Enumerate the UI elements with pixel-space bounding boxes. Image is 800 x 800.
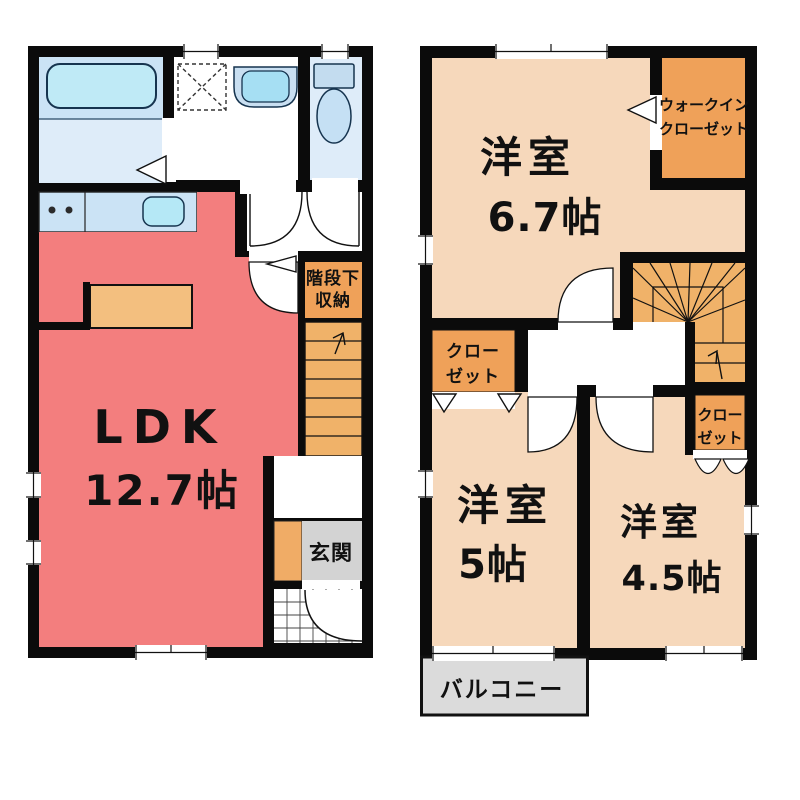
- label-room5-size: 5帖: [458, 542, 528, 588]
- label-room67-size: 6.7帖: [488, 195, 603, 241]
- window-top-toilet: [321, 44, 349, 59]
- wall-67-bottom-right: [613, 318, 633, 330]
- label-closet-left-2: ゼット: [446, 366, 500, 387]
- room5-door-gap: [528, 383, 577, 397]
- window-left-ldk-1: [26, 472, 41, 498]
- label-room45: 洋室: [620, 501, 702, 544]
- label-closet-right-2: ゼット: [697, 429, 742, 447]
- window-top-washroom: [183, 44, 219, 59]
- window-bottom-room5: [432, 646, 555, 661]
- window-left-room5: [418, 470, 433, 498]
- wall-hall-mid: [577, 385, 596, 397]
- wall-closet-right: [515, 318, 528, 397]
- closet-right-threshold: [693, 450, 747, 459]
- label-wic-2: クローゼット: [659, 120, 749, 138]
- floorplan-canvas: LDK 12.7帖 階段下 収納 玄関: [0, 0, 800, 800]
- floor2-plan: 洋室 6.7帖 ウォークイン クローゼット クロー ゼット クロー ゼット 洋室…: [418, 44, 759, 715]
- stove-knob-1: [49, 207, 56, 214]
- window-left-67: [418, 235, 433, 265]
- hall-1f: [247, 192, 362, 251]
- label-balcony: バルコニー: [440, 677, 565, 703]
- wall-67-bottom: [432, 318, 558, 330]
- window-bottom-room45: [665, 646, 743, 661]
- stairs-2f-flight: [695, 322, 745, 382]
- vanity-bowl: [242, 71, 289, 102]
- wall-between-rooms: [577, 397, 590, 648]
- label-understairs-2: 収納: [315, 290, 351, 311]
- window-right-room45: [744, 505, 759, 535]
- label-ldk-size: 12.7帖: [84, 466, 240, 515]
- entrance-door-gap: [302, 580, 360, 590]
- floorplan-svg: LDK 12.7帖 階段下 収納 玄関: [0, 0, 800, 800]
- stove-knob-2: [66, 207, 73, 214]
- hallway-upper: [633, 322, 685, 330]
- toilet-door-gap: [312, 178, 358, 194]
- bathtub: [47, 64, 156, 108]
- hallway-2f: [527, 330, 685, 385]
- wall-closet-right-left: [685, 395, 695, 455]
- washroom-door-gap: [240, 178, 296, 194]
- room45-door-gap: [596, 383, 653, 397]
- label-room67: 洋室: [480, 133, 576, 182]
- kitchen-island-counter: [90, 285, 192, 328]
- entry-step-block: [274, 521, 302, 581]
- window-left-ldk-2: [26, 540, 41, 565]
- label-wic-1: ウォークイン: [659, 96, 749, 114]
- label-understairs-1: 階段下: [306, 268, 360, 289]
- island-wall-stub-h: [39, 322, 90, 330]
- label-closet-left-1: クロー: [446, 342, 500, 362]
- label-entrance: 玄関: [309, 541, 353, 565]
- window-bottom-ldk: [135, 645, 207, 660]
- corridor-1f: [274, 456, 362, 518]
- toilet-bowl: [317, 89, 351, 143]
- label-closet-right-1: クロー: [697, 406, 742, 424]
- kitchen-sink: [143, 197, 184, 226]
- walk-in-closet: [662, 58, 745, 178]
- label-room5: 洋室: [457, 481, 553, 530]
- label-ldk: LDK: [93, 400, 226, 454]
- floor1-plan: LDK 12.7帖 階段下 収納 玄関: [26, 44, 373, 660]
- label-room45-size: 4.5帖: [621, 559, 722, 599]
- window-top-67: [495, 44, 608, 59]
- toilet-tank: [314, 64, 354, 88]
